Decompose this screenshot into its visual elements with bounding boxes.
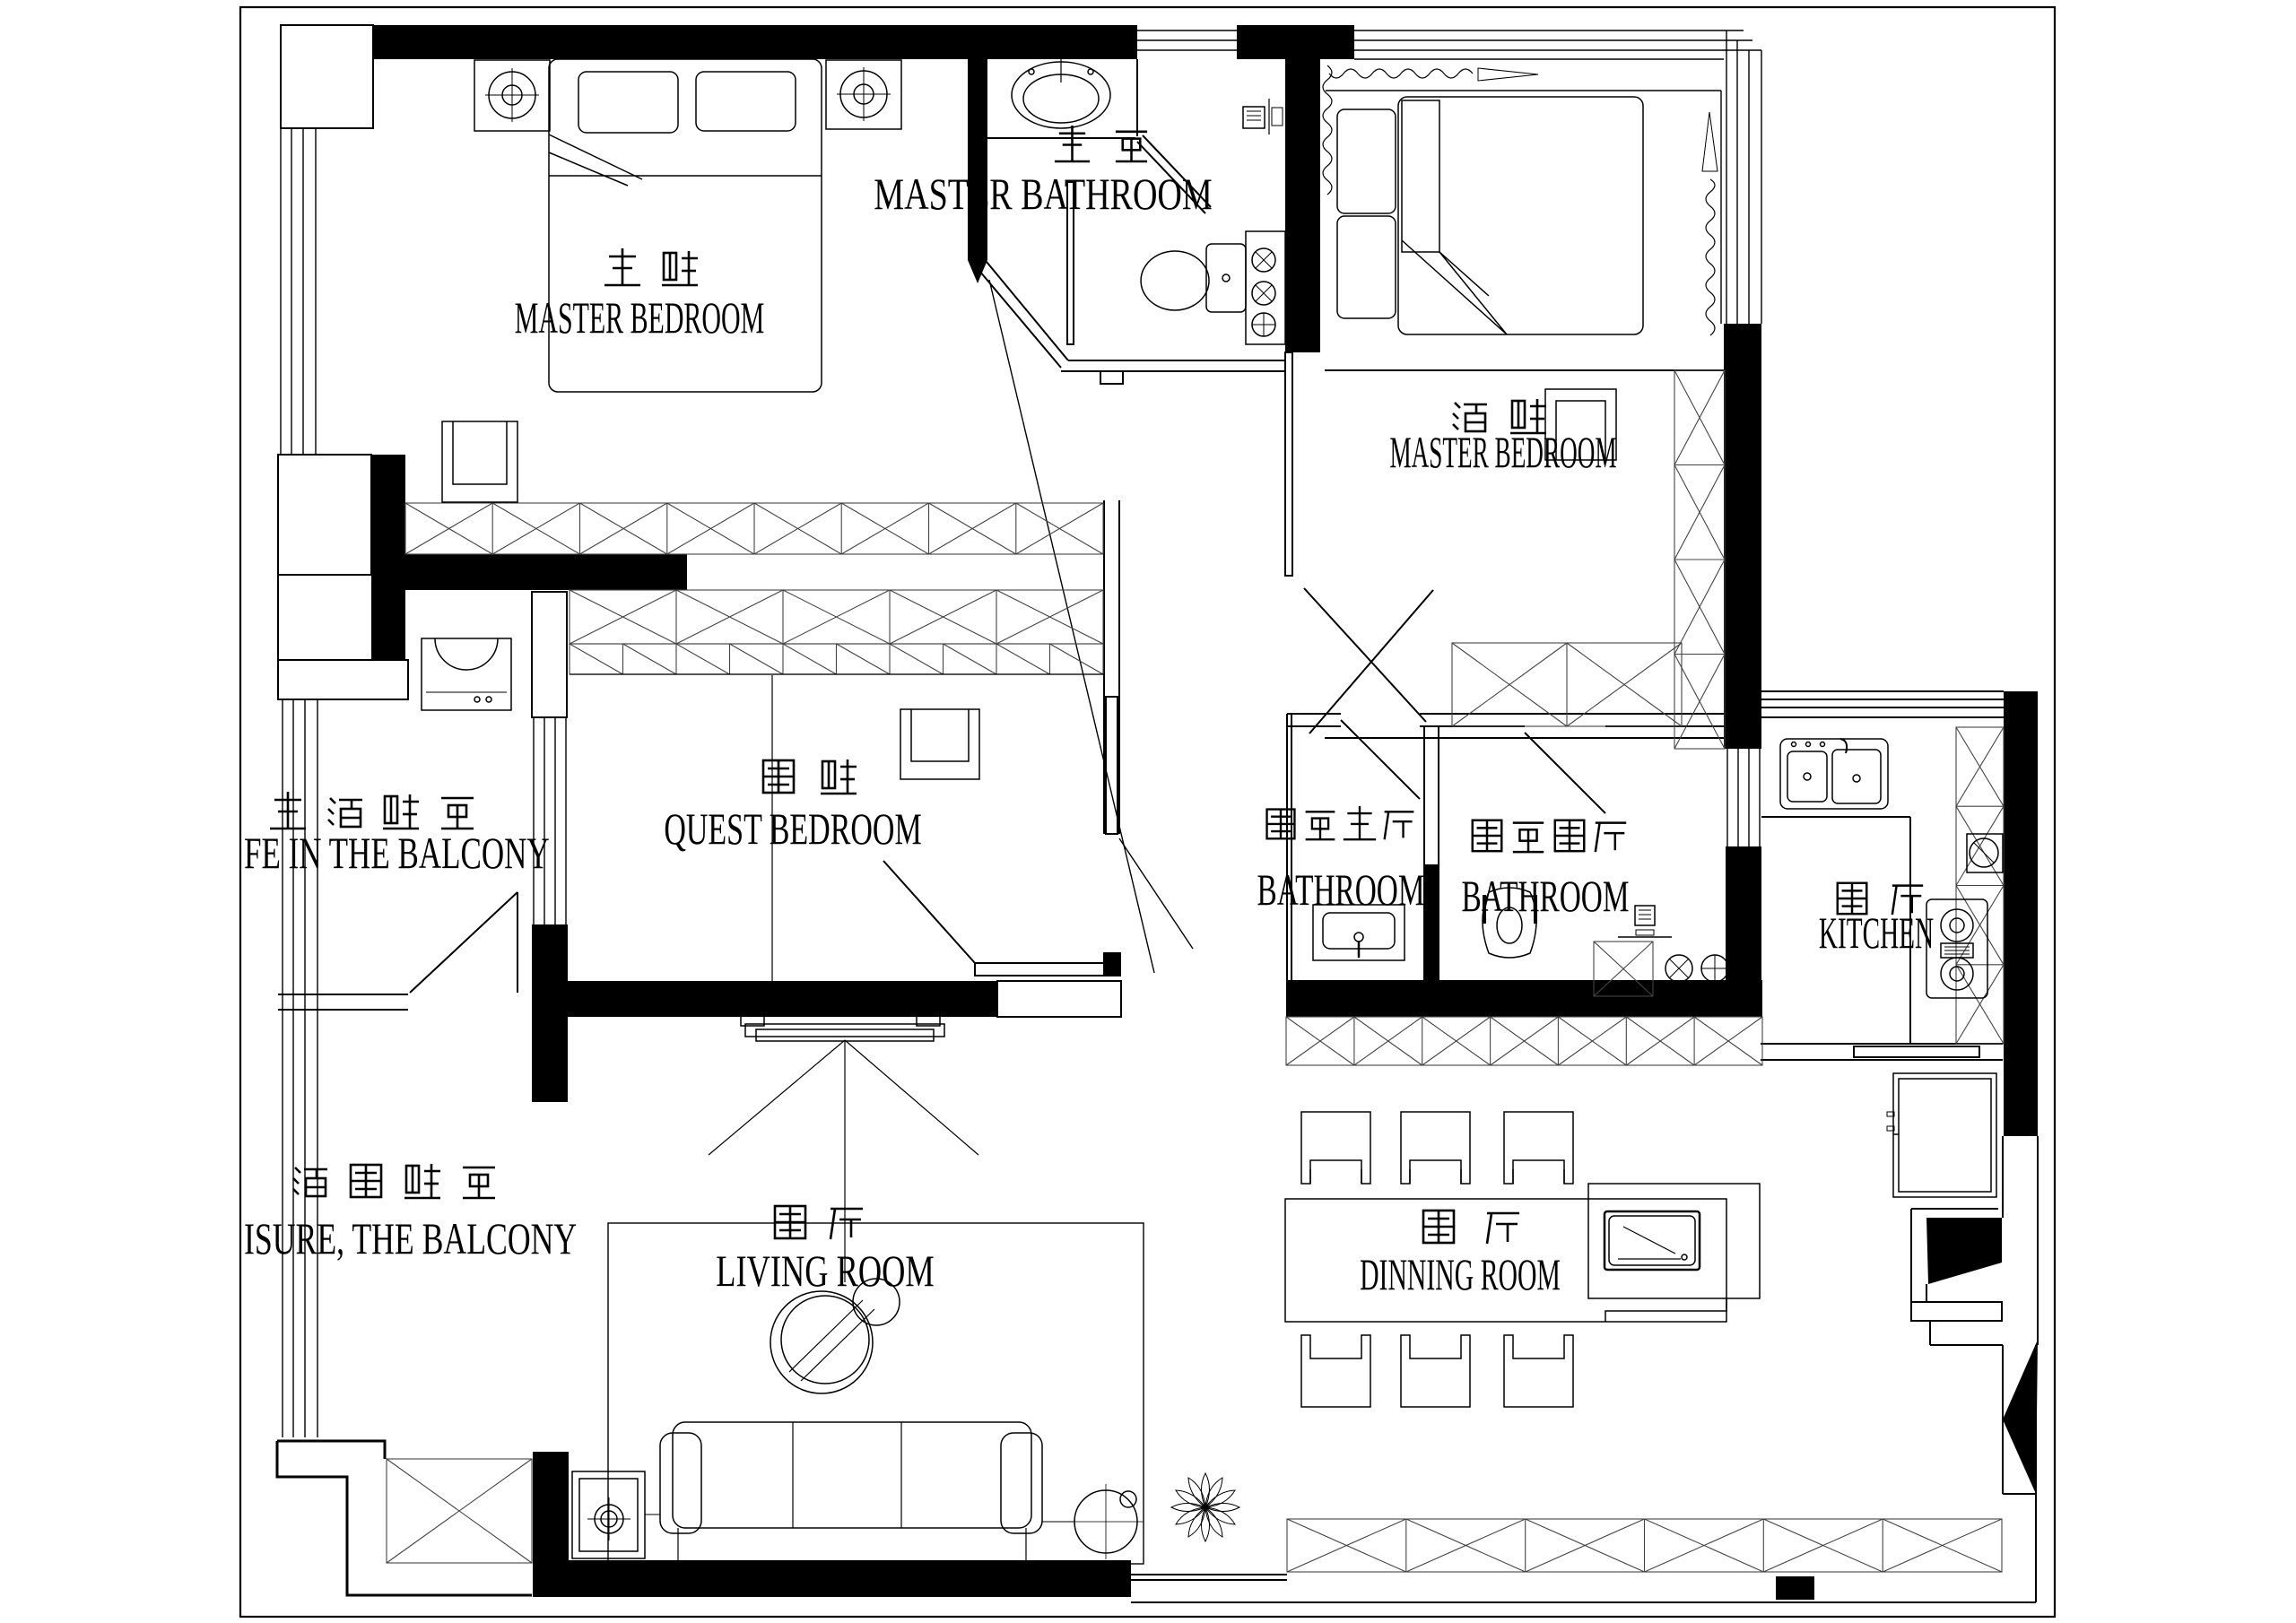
svg-text:QUEST BEDROOM: QUEST BEDROOM [664, 805, 921, 855]
svg-text:LIVING ROOM: LIVING ROOM [716, 1247, 934, 1297]
svg-text:KITCHEN: KITCHEN [1819, 908, 1934, 958]
svg-text:DINNING ROOM: DINNING ROOM [1360, 1250, 1561, 1298]
svg-text:BATHROOM: BATHROOM [1257, 867, 1425, 916]
svg-text:MASTER BEDROOM: MASTER BEDROOM [515, 293, 764, 342]
svg-text:MASTER BEDROOM: MASTER BEDROOM [1389, 429, 1616, 477]
svg-text:ISURE, THE BALCONY: ISURE, THE BALCONY [244, 1216, 577, 1264]
svg-text:BATHROOM: BATHROOM [1462, 873, 1630, 922]
svg-text:FE IN THE BALCONY: FE IN THE BALCONY [244, 829, 550, 878]
svg-text:MASTER BATHROOM: MASTER BATHROOM [874, 169, 1213, 219]
